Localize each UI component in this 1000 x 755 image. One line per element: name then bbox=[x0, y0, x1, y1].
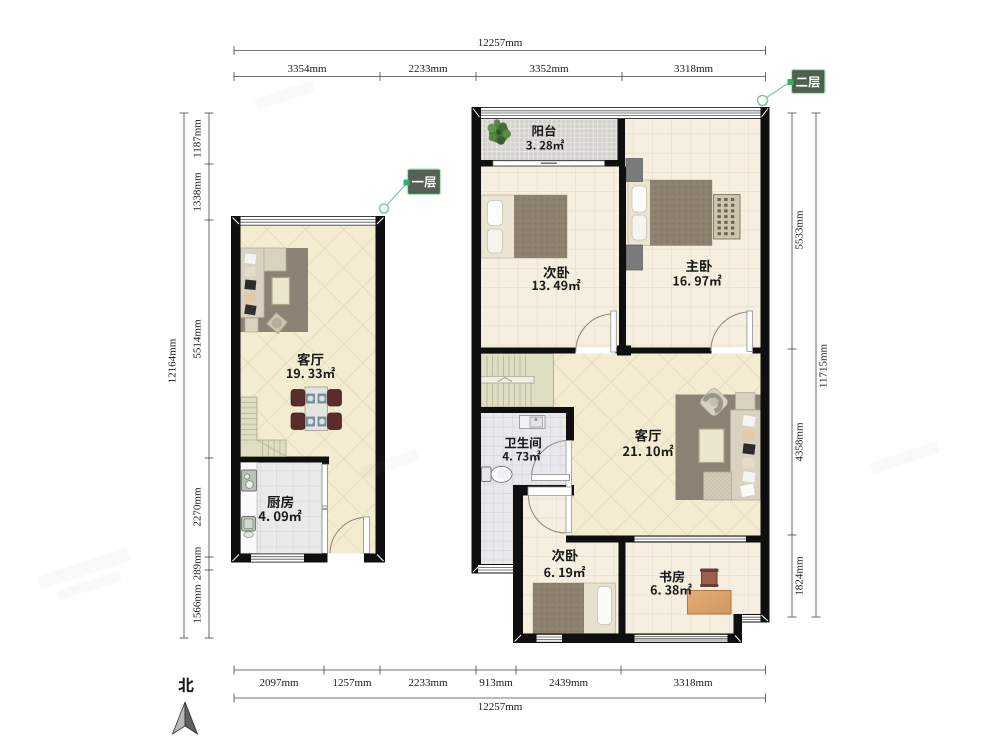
svg-text:289mm: 289mm bbox=[192, 546, 204, 580]
svg-text:11715mm: 11715mm bbox=[818, 343, 830, 388]
svg-text:2233mm: 2233mm bbox=[408, 677, 448, 689]
svg-text:3352mm: 3352mm bbox=[529, 63, 569, 75]
svg-text:1338mm: 1338mm bbox=[192, 172, 204, 212]
svg-text:2097mm: 2097mm bbox=[259, 677, 299, 689]
svg-text:1824mm: 1824mm bbox=[794, 556, 806, 596]
svg-text:3318mm: 3318mm bbox=[674, 63, 714, 75]
svg-text:5514mm: 5514mm bbox=[192, 319, 204, 359]
svg-text:1566mm: 1566mm bbox=[192, 584, 204, 624]
svg-text:2233mm: 2233mm bbox=[408, 63, 448, 75]
svg-text:4358mm: 4358mm bbox=[794, 422, 806, 462]
svg-text:12257mm: 12257mm bbox=[478, 37, 523, 49]
svg-text:3354mm: 3354mm bbox=[287, 63, 327, 75]
svg-text:2439mm: 2439mm bbox=[549, 677, 589, 689]
svg-text:1187mm: 1187mm bbox=[192, 119, 204, 158]
svg-text:1257mm: 1257mm bbox=[332, 677, 372, 689]
svg-text:2270mm: 2270mm bbox=[192, 487, 204, 527]
svg-text:5533mm: 5533mm bbox=[794, 210, 806, 250]
svg-text:12257mm: 12257mm bbox=[478, 701, 523, 713]
svg-text:913mm: 913mm bbox=[479, 677, 513, 689]
svg-text:12164mm: 12164mm bbox=[167, 338, 179, 383]
svg-text:3318mm: 3318mm bbox=[673, 677, 713, 689]
